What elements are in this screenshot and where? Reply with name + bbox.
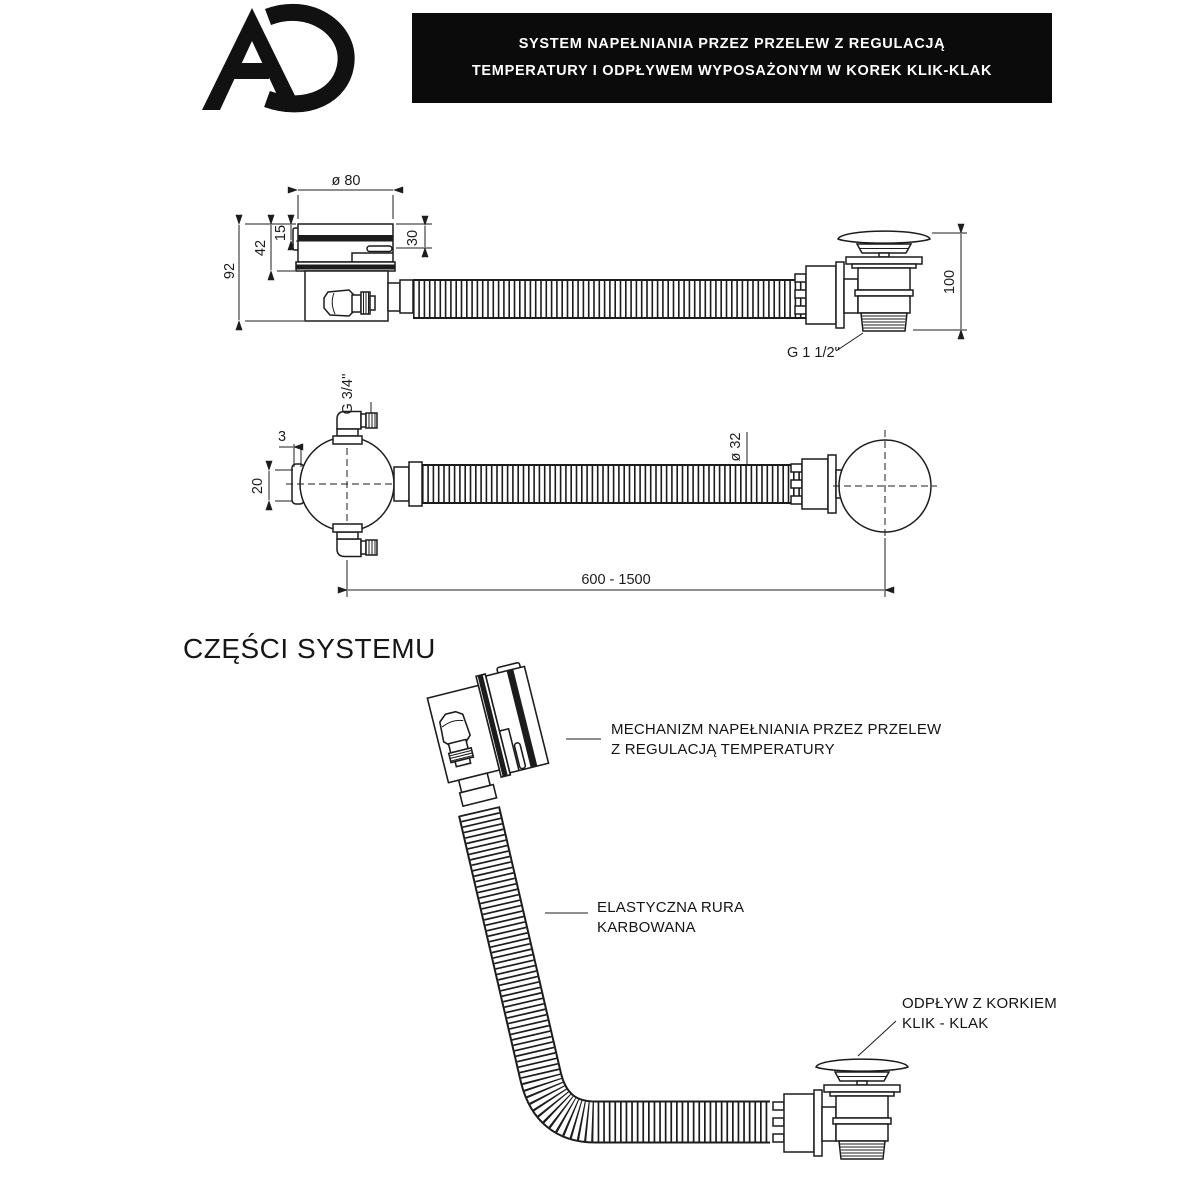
top-view: ø 80 92 42 15 30 100 G 1 1/2'' [222,173,967,361]
dim-upper-height: 42 [253,240,269,256]
title-banner: SYSTEM NAPEŁNIANIA PRZEZ PRZELEW Z REGUL… [412,13,1052,103]
inlet-elbow-top [333,412,377,445]
part-label-mechanism-line2: Z REGULACJĄ TEMPERATURY [611,741,835,758]
dim-drain-thread: G 1 1/2'' [787,345,840,361]
catalog-page: ø 80 92 42 15 30 100 G 1 1/2'' [0,0,1200,1200]
hose-nut-front [791,455,846,513]
dim-cap-height: 15 [273,225,289,241]
section-title: CZĘŚCI SYSTEMU [183,633,436,665]
dim-rim-offset: 3 [278,429,286,445]
front-view: G 3/4'' 3 20 ø 32 600 - 1500 [250,373,937,597]
part-label-hose-line2: KARBOWANA [597,919,696,936]
dim-cap-diameter: ø 80 [331,173,360,189]
part-label-hose-line1: ELASTYCZNA RURA [597,899,744,916]
dim-drain-height: 100 [942,270,958,294]
dim-right-height: 30 [405,230,421,246]
part-label-drain-line1: ODPŁYW Z KORKIEM [902,995,1057,1012]
dim-inlet-thread: G 3/4'' [340,373,356,414]
overflow-mechanism-side [293,224,413,321]
dim-hose-diameter: ø 32 [728,432,744,461]
corrugated-hose-part [479,811,770,1122]
brand-logo [202,8,346,112]
banner-line2: TEMPERATURY I ODPŁYWEM WYPOSAŻONYM W KOR… [472,58,992,85]
click-clack-drain-part [773,1059,908,1159]
part-label-mechanism-line1: MECHANIZM NAPEŁNIANIA PRZEZ PRZELEW [611,721,942,738]
technical-diagram: ø 80 92 42 15 30 100 G 1 1/2'' [0,0,1200,1200]
inlet-elbow-bottom [333,524,377,557]
part-label-drain-line2: KLIK - KLAK [902,1015,988,1032]
banner-line1: SYSTEM NAPEŁNIANIA PRZEZ PRZELEW Z REGUL… [519,31,946,58]
dim-hose-length: 600 - 1500 [581,572,650,588]
overflow-mechanism-part [424,661,553,808]
leader-line-drain [858,1021,896,1056]
click-clack-drain-side [795,231,930,331]
dim-total-height: 92 [222,263,238,279]
parts-view: MECHANIZM NAPEŁNIANIA PRZEZ PRZELEW Z RE… [424,661,1057,1159]
dim-rim-depth: 20 [250,478,266,494]
